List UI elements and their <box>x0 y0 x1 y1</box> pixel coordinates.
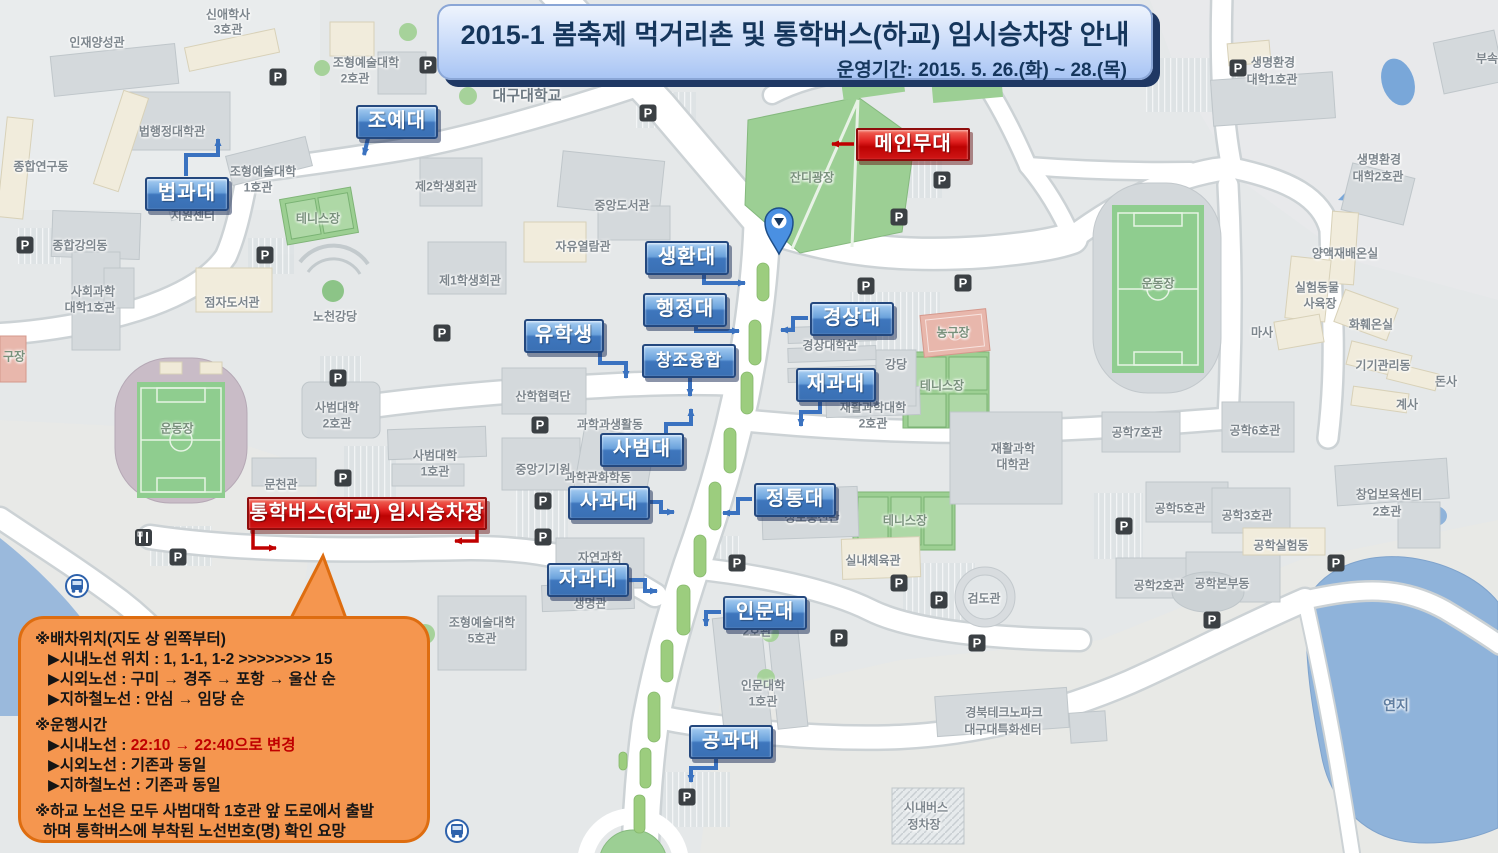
parking-icon: P <box>535 529 552 546</box>
parking-icon: P <box>1230 60 1247 77</box>
map-name: 재활과학 <box>991 440 1035 457</box>
map-name: 생명환경 <box>1357 151 1401 168</box>
map-name: 잔디광장 <box>790 169 834 186</box>
college-label: 공과대 <box>689 725 773 759</box>
map-name: 사범대학 <box>315 399 359 416</box>
parking-icon: P <box>532 417 549 434</box>
parking-icon: P <box>891 575 908 592</box>
map-name: 검도관 <box>967 590 1000 607</box>
map-name: 종합연구동 <box>13 158 68 175</box>
operating-time-title: ※운행시간 <box>35 716 427 736</box>
map-name: 3호관 <box>214 21 243 38</box>
map-name: 사회과학 <box>71 283 115 300</box>
dispatch-city-route: ▶시내노선 위치 : 1, 1-1, 1-2 >>>>>>>> 15 <box>35 650 427 670</box>
departure-note-line2: 하며 통학버스에 부착된 노선번호(명) 확인 요망 <box>35 822 427 842</box>
map-name: 법행정대학관 <box>139 123 205 140</box>
map-name: 점자도서관 <box>204 294 259 311</box>
parking-icon: P <box>934 172 951 189</box>
map-name: 조형예술대학 <box>449 614 515 631</box>
map-name: 2호관 <box>341 70 370 87</box>
map-name: 자유열람관 <box>555 238 610 255</box>
map-name: 공학5호관 <box>1155 500 1206 517</box>
map-name: 1호관 <box>244 179 273 196</box>
map-name: 조형예술대학 <box>333 54 399 71</box>
bus-stop-label: 통학버스(하교) 임시승차장 <box>247 497 487 530</box>
map-name: 시내버스 <box>904 799 948 816</box>
map-name: 대학2호관 <box>1353 168 1404 185</box>
map-name: 공학2호관 <box>1134 577 1185 594</box>
college-label: 행정대 <box>643 293 727 327</box>
operating-period: 운영기간: 2015. 5. 26.(화) ~ 28.(목) <box>439 55 1151 82</box>
map-name: 운동장 <box>160 420 193 437</box>
festival-map-poster: 인재양성관신애학사3호관조형예술대학2호관대구대학교법행정대학관종합연구동조형예… <box>0 0 1498 853</box>
map-name: 창업보육센터 <box>1356 486 1422 503</box>
college-label: 유학생 <box>524 319 604 353</box>
parking-icon: P <box>969 635 986 652</box>
parking-icon: P <box>434 325 451 342</box>
map-name: 조형예술대학 <box>230 163 296 180</box>
dispatch-location-title: ※배차위치(지도 상 왼쪽부터) <box>35 630 427 650</box>
college-label: 법과대 <box>145 177 229 211</box>
map-name: 계사 <box>1396 396 1418 413</box>
parking-icon: P <box>640 105 657 122</box>
map-name: 생명관 <box>573 595 606 612</box>
map-name: 대구대특화센터 <box>964 721 1041 738</box>
map-name: 부속 <box>1476 50 1498 67</box>
map-name: 사범대학 <box>413 447 457 464</box>
map-name: 2호관 <box>1373 503 1402 520</box>
map-name: 문천관 <box>264 476 297 493</box>
map-name: 노천강당 <box>313 308 357 325</box>
title-banner: 2015-1 봄축제 먹거리촌 및 통학버스(하교) 임시승차장 안내 운영기간… <box>437 4 1153 80</box>
map-name: 공학6호관 <box>1230 422 1281 439</box>
parking-icon: P <box>729 555 746 572</box>
map-name: 산학협력단 <box>515 388 570 405</box>
map-name: 생명환경 <box>1251 54 1295 71</box>
map-name: 구장 <box>3 348 25 365</box>
college-label: 생환대 <box>645 241 729 275</box>
time-intercity-route: ▶시외노선 : 기존과 동일 <box>35 756 427 776</box>
parking-icon: P <box>17 237 34 254</box>
map-name: 경북테크노파크 <box>965 704 1042 721</box>
map-name: 실험동물 <box>1295 279 1339 296</box>
map-name: 중앙기기원 <box>515 461 570 478</box>
college-label: 인문대 <box>723 596 807 630</box>
map-name: 1호관 <box>749 693 778 710</box>
time-city-prefix: ▶시내노선 : <box>48 737 131 754</box>
map-name: 대구대학교 <box>492 85 561 106</box>
map-name: 공학7호관 <box>1112 424 1163 441</box>
college-label: 자과대 <box>547 563 629 597</box>
parking-icon: P <box>170 549 187 566</box>
map-name: 공학3호관 <box>1222 507 1273 524</box>
map-name: 5호관 <box>468 630 497 647</box>
parking-icon: P <box>270 69 287 86</box>
parking-icon: P <box>330 370 347 387</box>
main-stage-label: 메인무대 <box>856 128 970 161</box>
map-name: 종합강의동 <box>52 237 107 254</box>
map-name: 테니스장 <box>883 512 927 529</box>
map-name: 농구장 <box>936 324 969 341</box>
map-name: 공학실험동 <box>1253 537 1308 554</box>
college-label: 조예대 <box>356 105 438 139</box>
map-name: 테니스장 <box>920 377 964 394</box>
map-name: 중앙도서관 <box>594 197 649 214</box>
dispatch-subway-route: ▶지하철노선 : 안심 → 임당 순 <box>35 690 427 710</box>
bus-info-bubble: ※배차위치(지도 상 왼쪽부터) ▶시내노선 위치 : 1, 1-1, 1-2 … <box>18 616 430 843</box>
map-name: 정차장 <box>907 816 940 833</box>
map-name: 양액재배온실 <box>1312 245 1378 262</box>
dispatch-intercity-route: ▶시외노선 : 구미 → 경주 → 포항 → 울산 순 <box>35 670 427 690</box>
parking-icon: P <box>257 247 274 264</box>
bus-icon <box>446 820 468 842</box>
college-label: 사과대 <box>568 486 650 520</box>
map-name: 인문대학 <box>741 677 785 694</box>
college-label: 경상대 <box>810 302 894 336</box>
college-label: 재과대 <box>796 368 876 402</box>
bus-icon <box>66 575 88 597</box>
map-name: 기기관리동 <box>1355 357 1410 374</box>
map-name: 연지 <box>1383 695 1409 715</box>
map-name: 제1학생회관 <box>439 272 501 289</box>
map-name: 강당 <box>885 356 907 373</box>
parking-icon: P <box>1328 555 1345 572</box>
college-label: 사범대 <box>600 433 684 467</box>
parking-icon: P <box>535 493 552 510</box>
college-label: 정통대 <box>754 483 836 517</box>
time-city-route: ▶시내노선 : 22:10 → 22:40으로 변경 <box>35 736 427 756</box>
parking-icon: P <box>1204 612 1221 629</box>
parking-icon: P <box>891 209 908 226</box>
parking-icon: P <box>931 592 948 609</box>
map-name: 공학본부동 <box>1194 575 1249 592</box>
college-label: 창조융합 <box>642 344 736 378</box>
map-name: 경상대학관 <box>802 337 857 354</box>
map-name: 마사 <box>1251 324 1273 341</box>
map-name: 대학1호관 <box>1247 71 1298 88</box>
parking-icon: P <box>335 470 352 487</box>
map-name: 대학1호관 <box>65 299 116 316</box>
time-city-change: 22:10 → 22:40으로 변경 <box>131 737 296 754</box>
map-name: 인재양성관 <box>69 34 124 51</box>
parking-icon: P <box>679 789 696 806</box>
parking-icon: P <box>955 275 972 292</box>
map-name: 대학관 <box>996 456 1029 473</box>
parking-icon: P <box>858 278 875 295</box>
departure-note-line1: ※하교 노선은 모두 사범대학 1호관 앞 도로에서 출발 <box>35 802 427 822</box>
map-name: 1호관 <box>421 463 450 480</box>
map-name: 테니스장 <box>296 210 340 227</box>
map-name: 돈사 <box>1435 373 1457 390</box>
map-name: 운동장 <box>1141 275 1174 292</box>
parking-icon: P <box>1116 518 1133 535</box>
map-name: 화훼온실 <box>1349 316 1393 333</box>
restaurant-icon <box>135 529 152 546</box>
parking-icon: P <box>831 630 848 647</box>
map-name: 제2학생회관 <box>415 178 477 195</box>
time-subway-route: ▶지하철노선 : 기존과 동일 <box>35 776 427 796</box>
map-name: 실내체육관 <box>845 552 900 569</box>
map-name: 과학관화학동 <box>565 469 631 486</box>
parking-icon: P <box>420 57 437 74</box>
map-name: 사육장 <box>1303 295 1336 312</box>
map-name: 과학과생활동 <box>577 416 643 433</box>
map-name: 2호관 <box>323 415 352 432</box>
poster-title: 2015-1 봄축제 먹거리촌 및 통학버스(하교) 임시승차장 안내 <box>439 13 1151 52</box>
map-name: 2호관 <box>859 415 888 432</box>
